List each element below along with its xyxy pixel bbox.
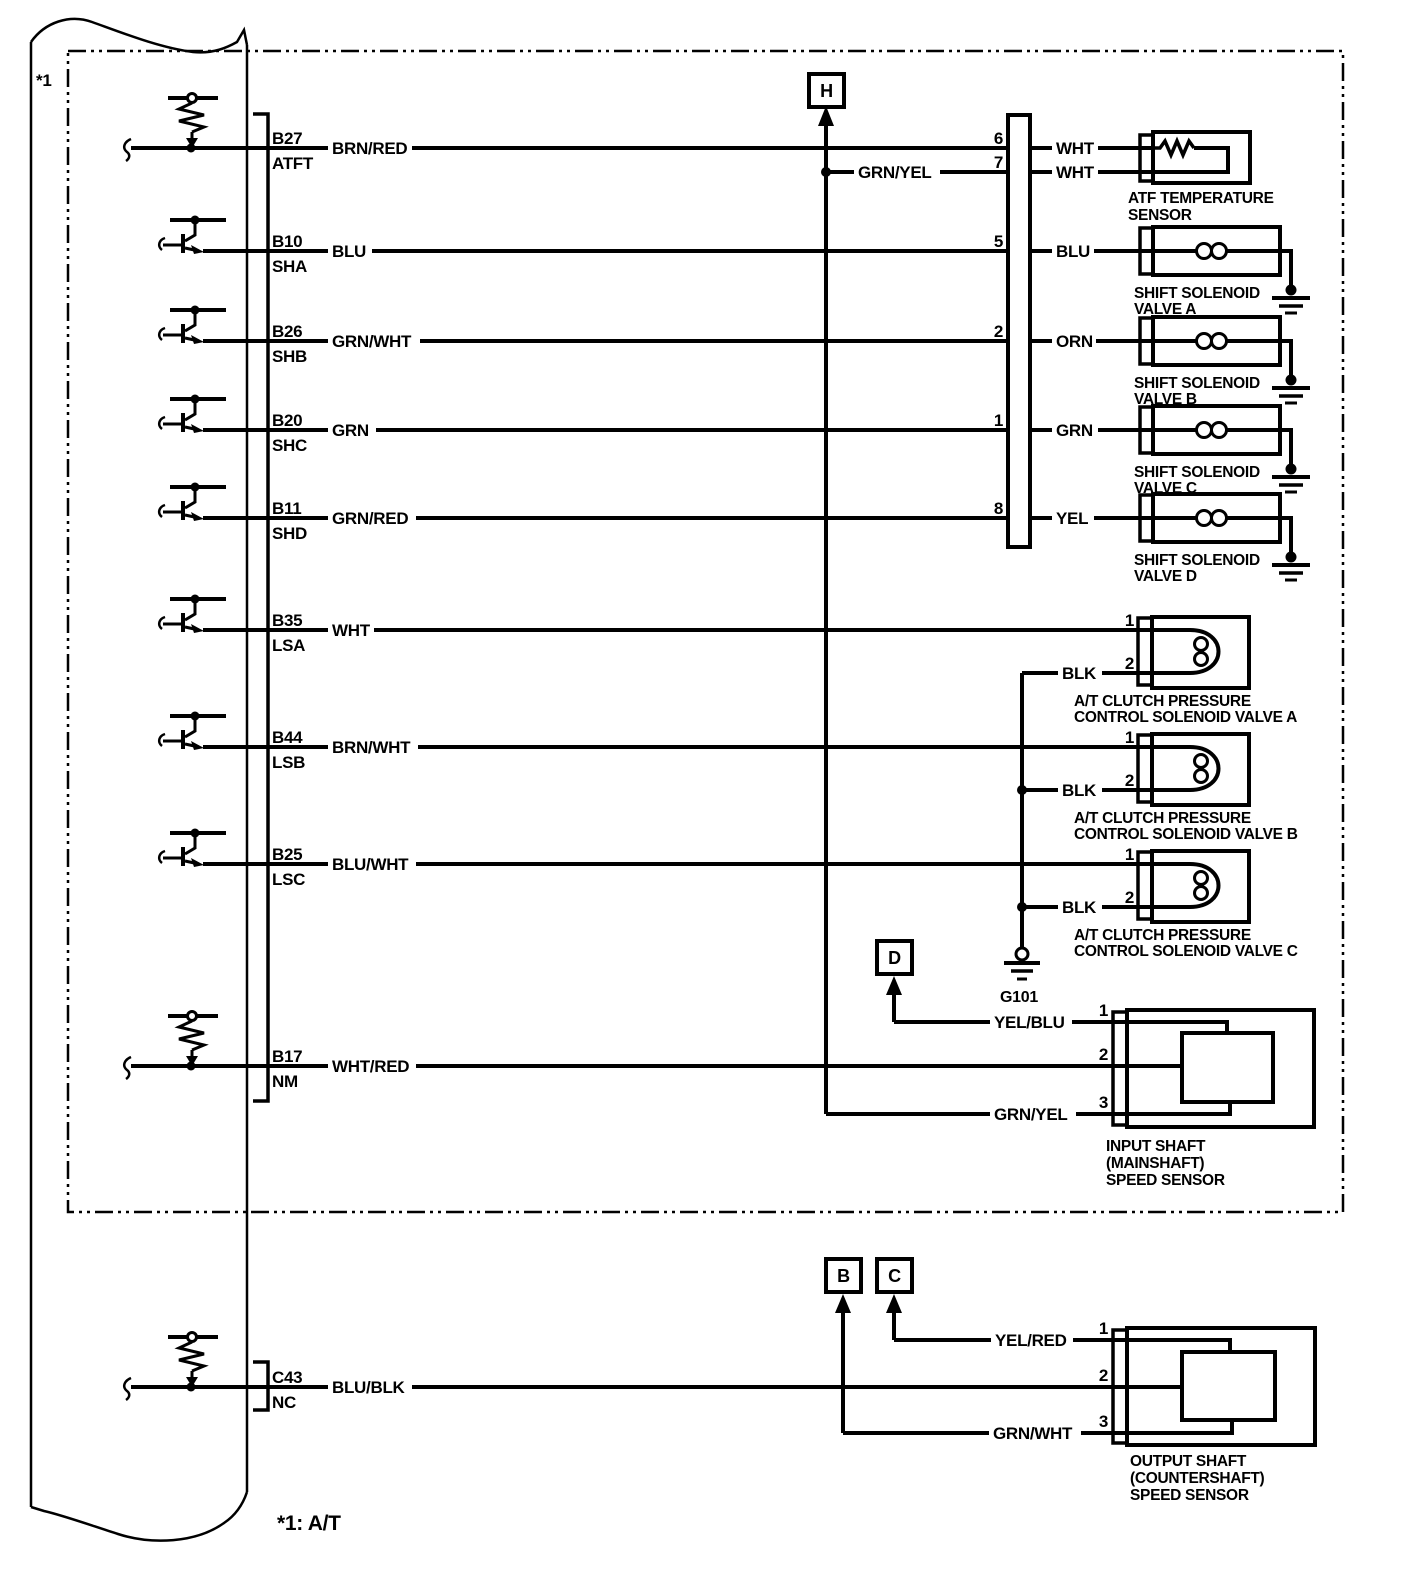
pin-name: SHD (272, 524, 307, 543)
connector-ref-d: D (877, 941, 912, 995)
pin-number: 2 (1099, 1366, 1108, 1385)
component-label: VALVE D (1134, 568, 1197, 585)
wire-color: WHT (1056, 139, 1095, 158)
wiring-diagram-page: *1 (0, 0, 1408, 1576)
wire-color: YEL/BLU (994, 1013, 1065, 1032)
pin-number: 2 (1125, 888, 1134, 907)
component-label: SPEED SENSOR (1106, 1172, 1225, 1189)
pin-name: SHA (272, 257, 307, 276)
wire-color: BRN/WHT (332, 738, 411, 757)
cavity-number: 7 (994, 153, 1003, 172)
shift-solenoid-valve-a: SHIFT SOLENOID VALVE A (1134, 227, 1310, 318)
component-label: SHIFT SOLENOID (1134, 464, 1260, 481)
ground-icon (1016, 948, 1028, 960)
wire-color: BLU (332, 242, 366, 261)
inline-connector-body (1008, 115, 1030, 547)
wire-color: GRN/WHT (993, 1424, 1073, 1443)
junction-dot (821, 167, 831, 177)
pcm-footnote-marker: *1 (36, 71, 51, 90)
pin-number: 1 (1125, 611, 1134, 630)
input-shaft-speed-sensor: 1 2 3 INPUT SHAFT (MAINSHAFT) SPEED SENS… (1099, 1001, 1314, 1189)
pin-id: B17 (272, 1047, 302, 1066)
wire-color: BLK (1062, 781, 1097, 800)
wire-color: WHT (332, 621, 371, 640)
component-label: ATF TEMPERATURE (1128, 190, 1274, 207)
cavity-number: 8 (994, 499, 1003, 518)
pin-name: NM (272, 1072, 298, 1091)
component-label: A/T CLUTCH PRESSURE (1074, 927, 1251, 944)
pin-name: LSA (272, 636, 305, 655)
component-label: SENSOR (1128, 207, 1192, 224)
wire-color: GRN/YEL (858, 163, 931, 182)
cavity-number: 5 (994, 232, 1003, 251)
inline-connector-pins: 6 7 5 2 1 8 (994, 129, 1003, 518)
ground-label: G101 (1000, 989, 1038, 1006)
pin-name: SHC (272, 436, 307, 455)
pin-id: B11 (272, 499, 301, 518)
pin-name: NC (272, 1393, 296, 1412)
pin-number: 1 (1099, 1001, 1108, 1020)
ground-g101: G101 (1000, 948, 1040, 1006)
connector-ref-c: C (877, 1259, 912, 1313)
junction-dot (1017, 902, 1027, 912)
wire-color: BLU/WHT (332, 855, 409, 874)
pin-number: 1 (1125, 845, 1134, 864)
component-label: CONTROL SOLENOID VALVE A (1074, 709, 1297, 726)
pin-id: C43 (272, 1368, 302, 1387)
component-label: A/T CLUTCH PRESSURE (1074, 693, 1251, 710)
cavity-number: 6 (994, 129, 1003, 148)
arrow-up-icon (886, 1294, 902, 1313)
footnote: *1: A/T (277, 1512, 341, 1535)
wire-color: BRN/RED (332, 139, 407, 158)
component-label: CONTROL SOLENOID VALVE B (1074, 826, 1298, 843)
wire-color: GRN (1056, 421, 1093, 440)
pin-number: 3 (1099, 1093, 1108, 1112)
wire-color: YEL (1056, 509, 1088, 528)
pin-id: B27 (272, 129, 302, 148)
ref-label-d: D (888, 948, 901, 968)
pin-id: B20 (272, 411, 302, 430)
wire-color: BLK (1062, 664, 1097, 683)
wire-color-labels-left: BRN/RED BLU GRN/WHT GRN GRN/RED WHT BRN/… (328, 139, 420, 1397)
wire-color: WHT (1056, 163, 1095, 182)
pin-number: 2 (1125, 654, 1134, 673)
wire-color: ORN (1056, 332, 1093, 351)
pcm-connector-bracket (253, 114, 268, 1101)
pin-id: B10 (272, 232, 302, 251)
pin-id: B35 (272, 611, 302, 630)
junction-dot (1017, 785, 1027, 795)
wire-color-labels-right: WHT WHT BLU ORN GRN YEL (1052, 139, 1098, 528)
component-label: (MAINSHAFT) (1106, 1155, 1204, 1172)
branch-wire-labels: GRN/YEL BLK BLK BLK YEL/BLU GRN/YEL YEL/… (854, 163, 1102, 1443)
atf-temperature-sensor: ATF TEMPERATURE SENSOR (1128, 132, 1274, 224)
ref-label-h: H (820, 81, 833, 101)
component-label: SHIFT SOLENOID (1134, 552, 1260, 569)
connector-ref-b: B (826, 1259, 861, 1313)
cavity-number: 1 (994, 411, 1003, 430)
wire-color: GRN/WHT (332, 332, 412, 351)
wire-color: BLU/BLK (332, 1378, 406, 1397)
pin-id: B26 (272, 322, 302, 341)
wire-color: BLK (1062, 898, 1097, 917)
component-label: SHIFT SOLENOID (1134, 375, 1260, 392)
wire-color: YEL/RED (995, 1331, 1067, 1350)
pin-number: 3 (1099, 1412, 1108, 1431)
pin-number: 1 (1125, 728, 1134, 747)
pin-number: 1 (1099, 1319, 1108, 1338)
shift-solenoid-valve-b: SHIFT SOLENOID VALVE B (1134, 317, 1310, 408)
wire-color: GRN (332, 421, 369, 440)
arrow-up-icon (835, 1294, 851, 1313)
output-shaft-speed-sensor: 1 2 3 OUTPUT SHAFT (COUNTERSHAFT) SPEED … (1099, 1319, 1315, 1504)
component-label: OUTPUT SHAFT (1130, 1453, 1247, 1470)
connector-ref-h: H (809, 74, 844, 126)
pin-name: LSC (272, 870, 305, 889)
component-label: (COUNTERSHAFT) (1130, 1470, 1265, 1487)
pin-number: 2 (1099, 1045, 1108, 1064)
wires (131, 120, 1154, 1433)
arrow-up-icon (886, 976, 902, 995)
wire-color: WHT/RED (332, 1057, 409, 1076)
component-label: SPEED SENSOR (1130, 1487, 1249, 1504)
shift-solenoid-valve-c: SHIFT SOLENOID VALVE C (1134, 406, 1310, 497)
pin-name: SHB (272, 347, 307, 366)
pcm-pin-labels: B27 ATFT B10 SHA B26 SHB B20 SHC B11 SHD… (272, 129, 314, 1412)
ref-label-c: C (888, 1266, 901, 1286)
component-label: CONTROL SOLENOID VALVE C (1074, 943, 1298, 960)
component-label: INPUT SHAFT (1106, 1138, 1206, 1155)
ref-label-b: B (837, 1266, 850, 1286)
torn-paper-band (31, 19, 247, 1541)
component-label: A/T CLUTCH PRESSURE (1074, 810, 1251, 827)
pin-id: B25 (272, 845, 302, 864)
at-wiring-diagram: *1 (0, 0, 1408, 1576)
shift-solenoid-valve-d: SHIFT SOLENOID VALVE D (1134, 494, 1310, 585)
pin-name: LSB (272, 753, 305, 772)
wire-color: GRN/YEL (994, 1105, 1067, 1124)
pin-name: ATFT (272, 154, 314, 173)
wire-color: BLU (1056, 242, 1090, 261)
pin-id: B44 (272, 728, 303, 747)
wire-color: GRN/RED (332, 509, 408, 528)
cavity-number: 2 (994, 322, 1003, 341)
pin-number: 2 (1125, 771, 1134, 790)
component-label: SHIFT SOLENOID (1134, 285, 1260, 302)
